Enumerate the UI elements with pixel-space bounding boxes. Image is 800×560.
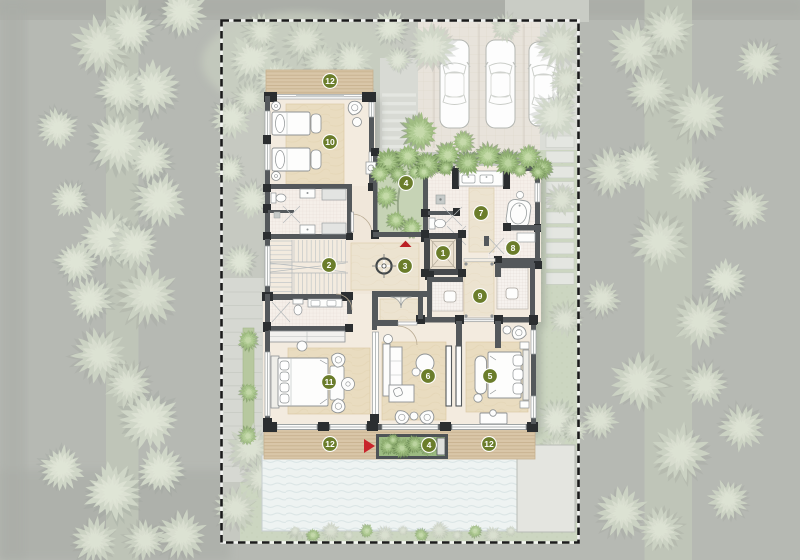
svg-text:4: 4 — [404, 178, 409, 188]
svg-text:10: 10 — [325, 137, 335, 147]
svg-text:12: 12 — [325, 439, 335, 449]
svg-text:12: 12 — [484, 439, 494, 449]
svg-text:6: 6 — [426, 371, 431, 381]
svg-text:3: 3 — [403, 261, 408, 271]
svg-text:1: 1 — [441, 248, 446, 258]
svg-text:5: 5 — [488, 371, 493, 381]
svg-text:12: 12 — [325, 76, 335, 86]
svg-text:4: 4 — [427, 440, 432, 450]
svg-text:9: 9 — [478, 291, 483, 301]
svg-text:11: 11 — [324, 377, 333, 387]
svg-text:7: 7 — [479, 208, 484, 218]
svg-text:2: 2 — [327, 260, 332, 270]
svg-text:8: 8 — [511, 243, 516, 253]
